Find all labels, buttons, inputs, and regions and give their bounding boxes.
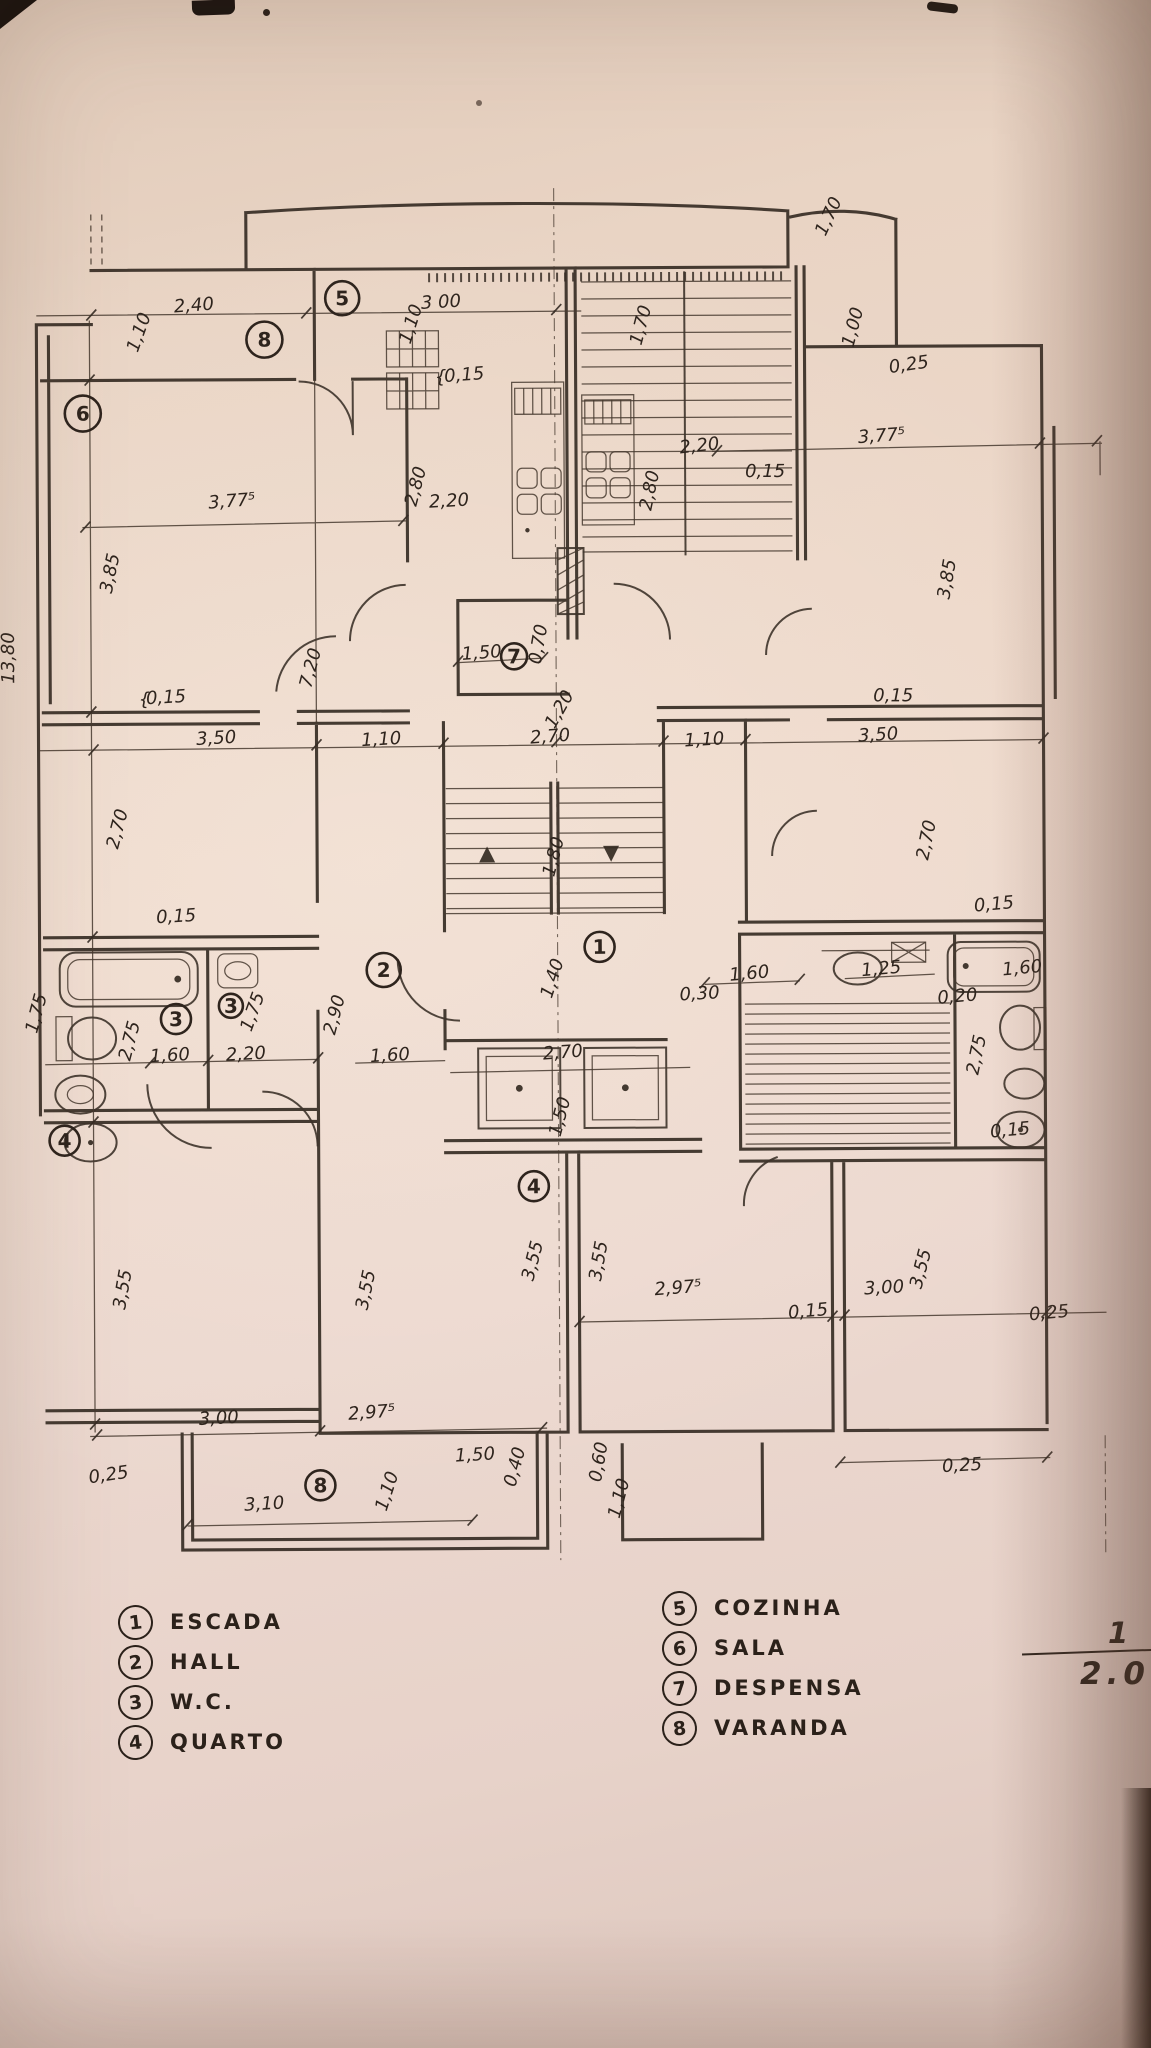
scale-denominator: 2.000	[1080, 1656, 1151, 1692]
dimension-label: 1,70	[626, 303, 656, 347]
dimension-label: 0,15	[156, 905, 197, 928]
svg-text:8: 8	[313, 1473, 327, 1497]
dimension-label: 1,50	[461, 641, 503, 665]
dimension-label: 2,20	[428, 490, 469, 513]
dimension-label: 3,55	[518, 1239, 548, 1283]
dimension-label: 3,00	[863, 1276, 904, 1299]
dimension-label: 0,15	[787, 1299, 829, 1324]
legend-circle-3: 3	[116, 1683, 154, 1721]
dimension-label: 3,55	[906, 1247, 936, 1291]
dimension-label: 1,00	[838, 305, 868, 349]
room-marker: 7	[501, 643, 527, 669]
drawing-scale: 1 2.000	[1022, 1616, 1151, 1692]
dimension-label: 2,70	[542, 1041, 584, 1065]
room-marker: 6	[65, 395, 101, 431]
dimension-labels: 2,403 001,101,10{0,151,701,701,000,253,7…	[0, 193, 1071, 1524]
room-marker: 8	[246, 322, 282, 358]
dimension-label: 0,25	[1028, 1301, 1070, 1326]
dimension-label: 1,50	[545, 1095, 575, 1139]
legend-label-wc: W.C.	[170, 1690, 235, 1714]
room-marker: 5	[325, 281, 359, 315]
dimension-label: 0,25	[887, 352, 930, 379]
legend-item-sala: 6 SALA	[662, 1628, 864, 1668]
dimension-label: 0,15	[873, 685, 913, 706]
dimension-label: 3,55	[109, 1268, 136, 1311]
photo-clip-mark	[192, 0, 235, 16]
dimension-label: 3,77⁵	[208, 489, 257, 513]
dimension-label: 1,75	[21, 991, 51, 1035]
legend-item-hall: 2 HALL	[118, 1642, 286, 1682]
svg-text:1: 1	[593, 935, 607, 959]
legend-circle-6: 6	[660, 1629, 698, 1667]
dimension-label: 1,60	[369, 1044, 410, 1067]
legend-circle-2: 2	[116, 1643, 154, 1681]
dimension-label: 2,80	[401, 464, 431, 508]
dimension-lines	[36, 185, 1108, 1563]
dimension-label: 2,70	[912, 818, 941, 862]
dimension-label: 0,60	[585, 1440, 612, 1483]
legend-left: 1 ESCADA 2 HALL 3 W.C. 4 QUARTO	[118, 1602, 286, 1762]
room-marker: 1	[585, 932, 615, 962]
dimension-label: 1,10	[371, 1469, 403, 1514]
dimension-label: 0,30	[679, 982, 720, 1005]
dimension-label: 0,15	[745, 461, 785, 482]
dimension-label: 0,15	[973, 892, 1015, 917]
svg-text:4: 4	[527, 1174, 541, 1198]
legend-label-escada: ESCADA	[170, 1610, 283, 1634]
legend-circle-1: 1	[116, 1603, 154, 1641]
dimension-label: 3,10	[244, 1493, 285, 1516]
dimension-label: 1,10	[684, 728, 725, 751]
legend-label-sala: SALA	[714, 1636, 787, 1660]
legend-item-wc: 3 W.C.	[118, 1682, 286, 1722]
dimension-label: 2,80	[635, 469, 664, 513]
dimension-label: 3,50	[858, 723, 899, 746]
svg-text:8: 8	[257, 328, 271, 352]
photo-speck	[476, 100, 482, 106]
dimension-label: 1,70	[811, 194, 847, 239]
legend-label-hall: HALL	[170, 1650, 243, 1674]
svg-text:6: 6	[76, 402, 90, 426]
dimension-label: 3,85	[96, 552, 125, 596]
dimension-label: 3,85	[934, 558, 961, 601]
dimension-label: 2,75	[962, 1033, 991, 1077]
dimension-label: 1,60	[728, 961, 770, 986]
legend-item-varanda: 8 VARANDA	[662, 1708, 864, 1748]
legend-item-cozinha: 5 COZINHA	[662, 1588, 864, 1628]
legend-right: 5 COZINHA 6 SALA 7 DESPENSA 8 VARANDA	[662, 1588, 864, 1748]
photo-speck	[263, 9, 270, 16]
dimension-label: 2,20	[678, 433, 720, 458]
dimension-label: 2,90	[319, 993, 349, 1037]
room-marker: 4	[519, 1171, 549, 1201]
dimension-label: 1,60	[149, 1044, 190, 1067]
dimension-label: 2,70	[102, 807, 132, 851]
room-marker: 3	[219, 994, 243, 1018]
dimension-label: 1,80	[539, 835, 569, 879]
dimension-label: 2,70	[529, 725, 571, 749]
dimension-label: 0,25	[87, 1462, 130, 1489]
scale-numerator: 1	[1108, 1616, 1151, 1650]
legend-circle-5: 5	[660, 1589, 698, 1627]
legend-label-despensa: DESPENSA	[714, 1676, 864, 1700]
dimension-label: 0,70	[525, 623, 552, 666]
stair-down-arrow-icon	[603, 846, 619, 862]
dimension-label: 2,75	[115, 1019, 145, 1063]
svg-text:3: 3	[169, 1007, 183, 1031]
dimension-label: 3,50	[196, 727, 237, 750]
dimension-label: 2,20	[225, 1043, 266, 1066]
dimension-label: 0,15	[989, 1118, 1031, 1143]
room-marker: 4	[50, 1126, 80, 1156]
room-marker: 2	[367, 953, 401, 987]
dimension-label: 1,25	[860, 957, 902, 982]
legend-circle-8: 8	[660, 1709, 698, 1747]
dimension-label: 1,10	[604, 1476, 634, 1520]
dimension-label: 1,10	[123, 310, 156, 355]
dimension-label: 2,97⁵	[347, 1400, 396, 1424]
svg-text:3: 3	[224, 994, 238, 1018]
dimension-label: 1,10	[395, 302, 427, 347]
dimension-label: 0,40	[500, 1445, 530, 1489]
dimension-label: 0,15	[145, 686, 186, 709]
scale-fraction-bar	[1022, 1649, 1151, 1656]
kitchen-fixtures	[386, 330, 634, 559]
legend-item-quarto: 4 QUARTO	[118, 1722, 286, 1762]
dimension-label: 13,80	[0, 632, 19, 684]
dimension-label: 2,97⁵	[654, 1276, 703, 1300]
dimension-label: 3,55	[585, 1239, 612, 1282]
legend-circle-7: 7	[660, 1669, 698, 1707]
dimension-label: 3,55	[352, 1268, 381, 1312]
legend-item-despensa: 7 DESPENSA	[662, 1668, 864, 1708]
svg-text:7: 7	[507, 644, 521, 668]
svg-text:4: 4	[58, 1129, 72, 1153]
legend-label-cozinha: COZINHA	[714, 1596, 843, 1620]
legend-label-varanda: VARANDA	[714, 1716, 850, 1740]
dimension-label: 0,25	[941, 1454, 982, 1477]
dimension-label: 7,20	[296, 646, 326, 690]
room-marker: 3	[161, 1004, 191, 1034]
dimension-label: 2,40	[173, 294, 215, 318]
legend-label-quarto: QUARTO	[170, 1730, 286, 1754]
dimension-label: 1,60	[1001, 956, 1043, 981]
legend-circle-4: 4	[116, 1723, 154, 1761]
dimension-label: 3,77⁵	[857, 424, 906, 448]
dimension-label: 1,40	[536, 956, 568, 1001]
dimension-label: 0,20	[936, 984, 978, 1009]
window-band	[428, 276, 784, 278]
service-stairs	[581, 271, 792, 556]
dimension-label: 0,15	[443, 363, 485, 387]
dimension-label: 1,10	[361, 728, 402, 751]
legend-item-escada: 1 ESCADA	[118, 1602, 286, 1642]
svg-text:5: 5	[335, 286, 349, 310]
room-marker: 8	[305, 1470, 335, 1500]
dimension-label: 1,50	[454, 1443, 495, 1466]
room-markers: 58672133448	[45, 280, 617, 1502]
floor-plan-photo: 2,403 001,101,10{0,151,701,701,000,253,7…	[0, 0, 1151, 2048]
dimension-label: 3,00	[198, 1407, 239, 1430]
svg-text:2: 2	[377, 958, 391, 982]
